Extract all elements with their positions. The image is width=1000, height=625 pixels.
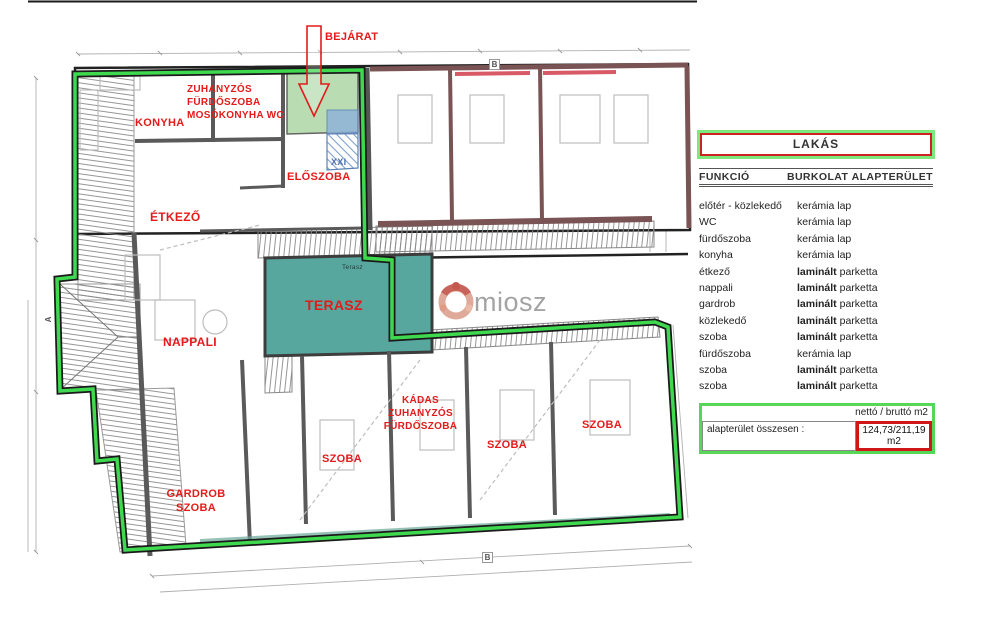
function-table-rows: előtér - közlekedőkerámia lapWCkerámia l…: [699, 198, 933, 395]
cell-burkolat: laminált parketta: [797, 280, 933, 296]
cell-funkcio: szoba: [699, 378, 797, 394]
top-wing-outline: [75, 64, 690, 234]
cell-burkolat: laminált parketta: [797, 329, 933, 345]
section-marker-b-top: B: [489, 59, 500, 70]
table-row: előtér - közlekedőkerámia lap: [699, 198, 933, 214]
table-row: szobalaminált parketta: [699, 329, 933, 345]
cell-burkolat: laminált parketta: [797, 313, 933, 329]
cell-funkcio: szoba: [699, 329, 797, 345]
miosz-watermark-text: miosz: [474, 287, 547, 318]
label-konyha: KONYHA: [135, 116, 184, 130]
section-marker-b-bottom: B: [482, 552, 493, 563]
cell-funkcio: közlekedő: [699, 313, 797, 329]
label-nappali: NAPPALI: [163, 335, 217, 350]
table-row: fürdőszobakerámia lap: [699, 231, 933, 247]
col-burkolat: BURKOLAT: [787, 171, 852, 183]
table-row: szobalaminált parketta: [699, 378, 933, 394]
cell-burkolat: kerámia lap: [797, 247, 933, 263]
cell-funkcio: szoba: [699, 362, 797, 378]
floorplan-page: BEJÁRAT ZUHANYZÓS FÜRDŐSZOBA MOSÓKONYHA …: [0, 0, 1000, 625]
cell-funkcio: fürdőszoba: [699, 346, 797, 362]
cell-funkcio: fürdőszoba: [699, 231, 797, 247]
apartment-title: LAKÁS: [700, 133, 932, 156]
label-eloszoba: ELŐSZOBA: [287, 170, 351, 184]
table-row: fürdőszobakerámia lap: [699, 346, 933, 362]
net-gross-label: nettó / bruttó m2: [702, 406, 932, 421]
section-marker-a-left: A: [44, 314, 55, 325]
label-bathroom-top: ZUHANYZÓS FÜRDŐSZOBA MOSÓKONYHA WC: [187, 84, 284, 122]
apartment-title-box: LAKÁS: [697, 130, 935, 159]
table-row: nappalilaminált parketta: [699, 280, 933, 296]
summary-box: nettó / bruttó m2 alapterület összesen :…: [699, 403, 935, 454]
cell-burkolat: kerámia lap: [797, 346, 933, 362]
cell-funkcio: gardrob: [699, 296, 797, 312]
table-row: szobalaminált parketta: [699, 362, 933, 378]
cell-funkcio: előtér - közlekedő: [699, 198, 797, 214]
cell-burkolat: kerámia lap: [797, 214, 933, 230]
label-etkezo: ÉTKEZŐ: [150, 210, 200, 225]
cell-funkcio: WC: [699, 214, 797, 230]
table-row: étkezőlaminált parketta: [699, 264, 933, 280]
cell-funkcio: étkező: [699, 264, 797, 280]
total-area-label: alapterület összesen :: [702, 421, 856, 451]
info-panel: LAKÁS FUNKCIÓ BURKOLAT ALAPTERÜLET előté…: [697, 0, 940, 625]
cell-burkolat: laminált parketta: [797, 296, 933, 312]
cell-burkolat: laminált parketta: [797, 378, 933, 394]
total-area-value: 124,73/211,19 m2: [856, 421, 932, 451]
label-szoba-mid: SZOBA: [487, 438, 527, 452]
table-row: közlekedőlaminált parketta: [699, 313, 933, 329]
table-row: konyhakerámia lap: [699, 247, 933, 263]
cell-burkolat: laminált parketta: [797, 264, 933, 280]
miosz-logo-icon: [440, 282, 473, 316]
cell-funkcio: konyha: [699, 247, 797, 263]
label-szoba-right: SZOBA: [582, 418, 622, 432]
cell-burkolat: kerámia lap: [797, 198, 933, 214]
label-terasz-small: Terasz: [342, 264, 363, 272]
cell-burkolat: laminált parketta: [797, 362, 933, 378]
col-alapterulet: ALAPTERÜLET: [852, 171, 933, 183]
table-row: gardroblaminált parketta: [699, 296, 933, 312]
cell-burkolat: kerámia lap: [797, 231, 933, 247]
label-kadas-bathroom: KÁDAS ZUHANYZÓS FÜRDŐSZOBA: [373, 395, 468, 433]
label-terasz: TERASZ: [305, 297, 363, 315]
cell-funkcio: nappali: [699, 280, 797, 296]
table-row: WCkerámia lap: [699, 214, 933, 230]
label-szoba-left: SZOBA: [322, 452, 362, 466]
col-funkcio: FUNKCIÓ: [699, 171, 787, 183]
table-header: FUNKCIÓ BURKOLAT ALAPTERÜLET: [699, 168, 933, 187]
label-staircase-xxi: XXI: [331, 157, 346, 169]
label-bejarat: BEJÁRAT: [325, 30, 378, 44]
label-gardrob: GARDROB SZOBA: [162, 487, 230, 515]
